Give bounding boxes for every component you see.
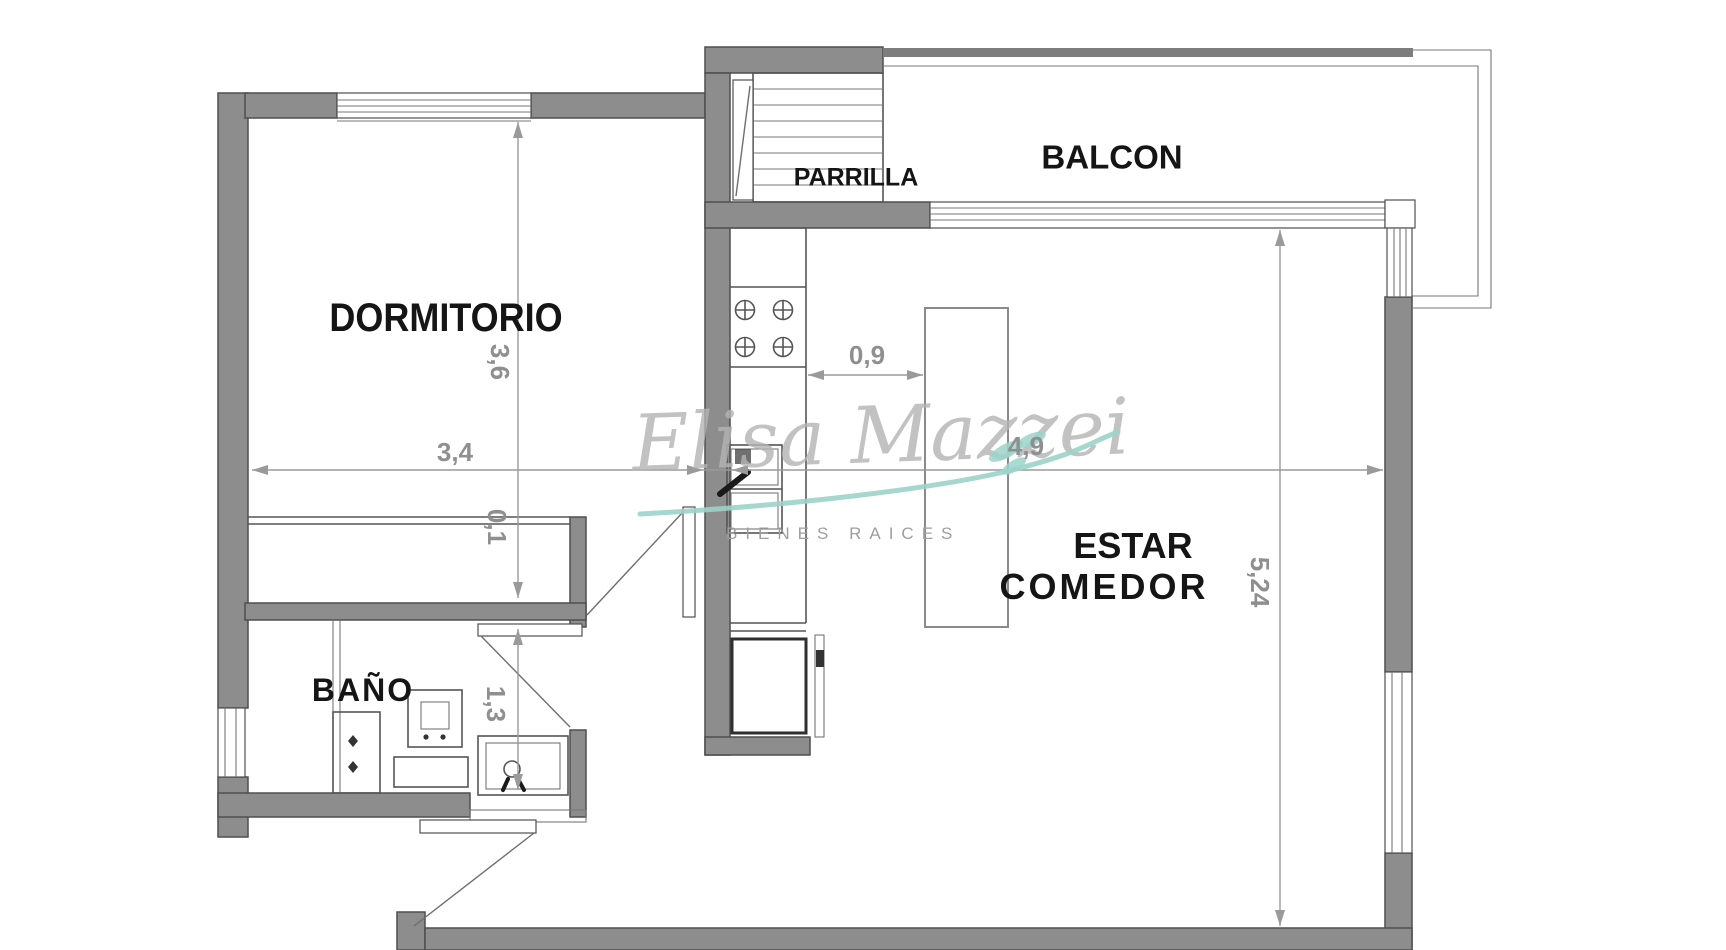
room-label-bedroom: DORMITORIO: [329, 298, 562, 338]
room-label-living-line2: COMEDOR: [1000, 569, 1209, 605]
room-label-balcony: BALCON: [1041, 141, 1182, 174]
watermark-tagline: BIENES RAICES: [726, 524, 960, 544]
dim-label-bedroom-depth: 3,6: [487, 344, 513, 380]
dim-label-kitchen-clearance: 0,9: [849, 342, 885, 368]
dim-label-living-depth: 5,24: [1247, 557, 1273, 608]
room-label-grill: PARRILLA: [794, 166, 919, 191]
dim-label-bedroom-width: 3,4: [437, 439, 473, 465]
room-label-bathroom: BAÑO: [312, 674, 414, 706]
watermark-swoosh: [640, 432, 1118, 514]
watermark-decoration: [0, 0, 1726, 950]
floor-plan: Elisa Mazzei BIENES RAICES DORMITORIO BA…: [0, 0, 1726, 950]
room-label-living-line1: ESTAR: [1073, 528, 1192, 564]
dim-label-living-width: 4,9: [1008, 433, 1044, 459]
dim-label-bathroom-length: 1,3: [483, 686, 509, 722]
dim-label-closet-depth: 0,1: [484, 509, 510, 545]
